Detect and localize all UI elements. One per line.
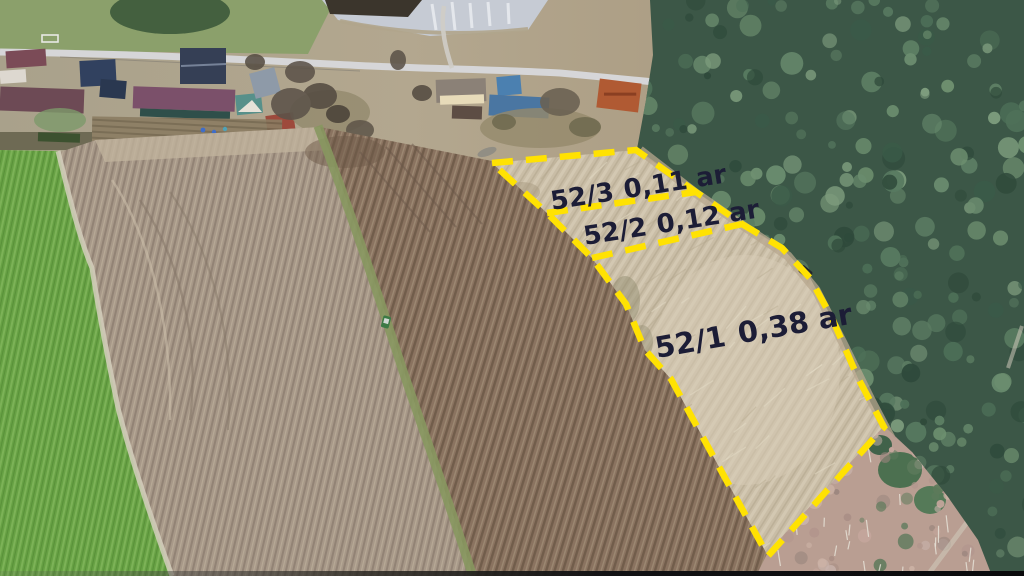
hedge (38, 132, 80, 142)
field2-dark-corner (305, 136, 385, 168)
house-white (0, 69, 26, 84)
blue-barrel (201, 128, 206, 133)
aerial-photo-canvas: 52/3 0,11 ar 52/2 0,12 ar 52/1 0,38 ar (0, 0, 1024, 576)
barn-purple-roof (133, 86, 236, 112)
shed-dark (452, 105, 482, 119)
house-cream-wall (440, 94, 484, 105)
bottom-edge-bar (0, 571, 1024, 576)
house-maroon-roof (5, 49, 46, 69)
house-navy-2 (99, 79, 126, 99)
barrel (223, 127, 227, 131)
aerial-photo: 52/3 0,11 ar 52/2 0,12 ar 52/1 0,38 ar (0, 0, 1024, 576)
house-blue-roof (496, 75, 522, 96)
